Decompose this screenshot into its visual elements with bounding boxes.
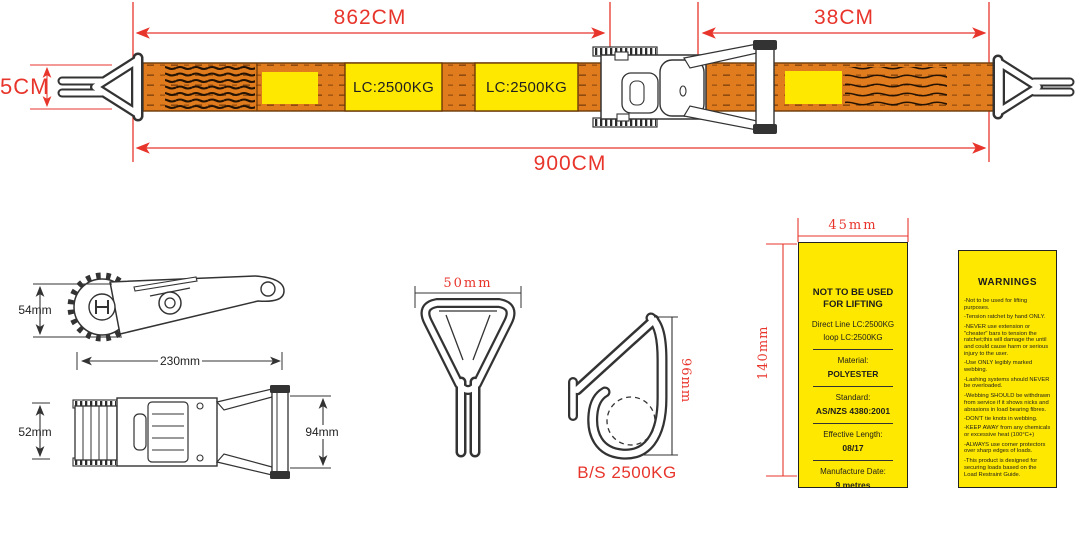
spec-date-value: 9 metres: [803, 480, 903, 490]
hook-strength-label: B/S 2500KG: [562, 463, 692, 483]
stitch-zone-right: [845, 67, 947, 107]
dim-5cm: 5CM: [0, 74, 46, 100]
hook-side-view-drawing: [573, 317, 678, 455]
webbing-rating-label-1: LC:2500KG: [345, 63, 442, 111]
warning-item: -Webbing SHOULD be withdrawn from servic…: [964, 393, 1051, 413]
left-delta-hook-drawing: [62, 58, 138, 116]
spec-material-value: POLYESTER: [803, 369, 903, 379]
warning-item: -This product is designed for securing l…: [964, 458, 1051, 478]
dim-900cm: 900CM: [480, 152, 660, 176]
spec-length-label: Effective Length:: [803, 430, 903, 439]
delta-hook-front-drawing: [415, 286, 521, 452]
right-delta-hook-drawing: [998, 60, 1070, 114]
ratchet-strap-spec-sheet: 862CM 38CM 900CM 5CM LC:2500KG LC:2500KG…: [0, 0, 1080, 535]
warning-item: -NEVER use extension or "cheater" bars t…: [964, 324, 1051, 358]
spec-length-value: 08/17: [803, 443, 903, 453]
warning-item: -DON'T tie knots in webbing.: [964, 416, 1051, 423]
spec-direct-line: Direct Line LC:2500KG: [803, 320, 903, 329]
divider: [813, 423, 893, 424]
dim-96mm: 96mm: [678, 358, 693, 416]
divider: [813, 460, 893, 461]
spec-material-label: Material:: [803, 356, 903, 365]
blank-label-patch-left: [262, 72, 318, 104]
dim-230mm: 230mm: [147, 354, 213, 368]
warning-item: -Lashing systems should NEVER be overloa…: [964, 377, 1051, 391]
dim-862cm: 862CM: [290, 6, 450, 30]
spec-loop-line: loop LC:2500KG: [803, 333, 903, 342]
webbing-rating-label-2: LC:2500KG: [475, 63, 578, 111]
spec-date-label: Manufacture Date:: [803, 467, 903, 476]
specification-label: NOT TO BE USED FOR LIFTING Direct Line L…: [798, 242, 908, 488]
dim-50mm: 50mm: [437, 276, 499, 291]
dim-140mm: 140mm: [756, 320, 771, 380]
spec-title: NOT TO BE USED FOR LIFTING: [803, 287, 903, 311]
dim-45mm: 45mm: [825, 218, 881, 233]
spec-standard-value: AS/NZS 4380:2001: [803, 406, 903, 416]
warning-item: -Tension ratchet by hand ONLY.: [964, 314, 1051, 321]
dim-38cm: 38CM: [769, 6, 919, 30]
warning-item: -KEEP AWAY from any chemicals or excessi…: [964, 425, 1051, 439]
warning-item: -Use ONLY legibly marked webbing.: [964, 360, 1051, 374]
blank-label-patch-right: [785, 71, 842, 104]
dim-52mm: 52mm: [11, 425, 59, 439]
ratchet-bottom-view-drawing: [32, 385, 331, 479]
stitch-zone-left: [165, 65, 255, 109]
warning-item: -ALWAYS use corner protectors over sharp…: [964, 442, 1051, 456]
warnings-label: WARNINGS -Not to be used for lifting pur…: [958, 250, 1057, 488]
spec-standard-label: Standard:: [803, 393, 903, 402]
dim-94mm: 94mm: [298, 425, 346, 439]
warning-item: -Not to be used for lifting purposes.: [964, 298, 1051, 312]
warnings-list: -Not to be used for lifting purposes. -T…: [964, 298, 1051, 478]
warnings-title: WARNINGS: [964, 277, 1051, 288]
divider: [813, 386, 893, 387]
divider: [813, 349, 893, 350]
dim-54mm: 54mm: [10, 303, 60, 317]
